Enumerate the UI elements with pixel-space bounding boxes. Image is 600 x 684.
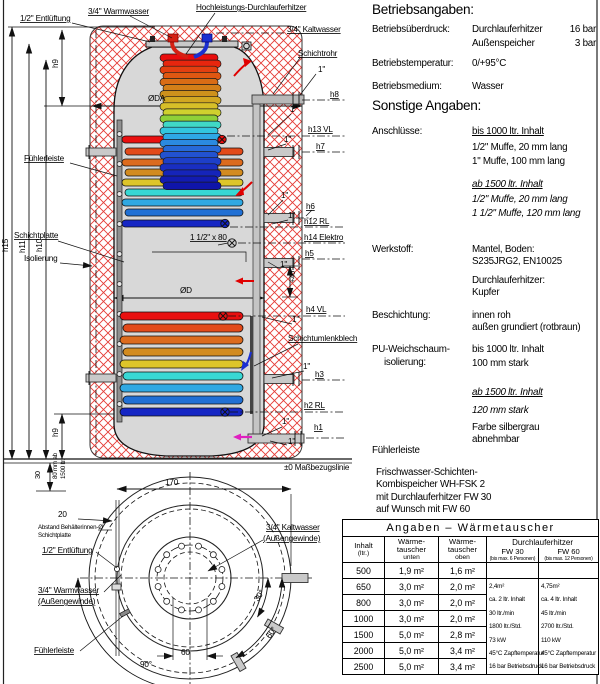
label-h14: h14 Elektro: [304, 233, 344, 242]
label-elektro-muffe: 1 1/2" x 80: [190, 233, 227, 242]
label-h12: h12 RL: [304, 217, 330, 226]
label-h1: h1: [314, 423, 323, 432]
label-plus40: +40: [288, 271, 297, 283]
label-h2: h2 RL: [304, 401, 325, 410]
label-umlenkblech: Schichtumlenkblech: [288, 334, 358, 343]
label-fuehlerleiste: Fühlerleiste: [24, 154, 65, 163]
label-h6: h6: [306, 202, 315, 211]
label-od: ØD: [180, 286, 192, 295]
label-inch: 1": [282, 417, 289, 426]
label-inch: 1": [290, 105, 297, 114]
spec-ans-3: 1" Muffe, 100 mm lang: [472, 156, 565, 167]
spec-product-2: Kombispeicher WH-FSK 2: [376, 479, 485, 490]
label-inch: 1": [288, 437, 295, 446]
label-abstand-2: Schichtplatte: [38, 532, 72, 539]
spec-ans-6: 1 1/2" Muffe, 120 mm lang: [472, 208, 580, 219]
label-abstand-1: Abstand Behälterinnen-Ø: [38, 524, 103, 531]
spec-ueberdruck-v1b: 16 bar: [570, 24, 596, 35]
table-title: Angaben – Wärmetauscher: [343, 520, 599, 537]
col-header-unten: Wärme-tauscherunten: [385, 537, 439, 563]
spec-ans-2: 1/2" Muffe, 20 mm lang: [472, 142, 567, 153]
label-dim80a: 80 mm ab: [52, 452, 59, 479]
entlueftung-fitting: [114, 566, 119, 571]
label-dim170: 170: [165, 478, 179, 487]
label-dim30: 30: [33, 471, 42, 479]
spec-werk-3: Durchlauferhitzer:: [472, 275, 545, 286]
label-tv-kaltwasser-2: (Außengewinde): [263, 534, 321, 543]
spec-werkstoff-label: Werkstoff:: [372, 244, 413, 255]
spec-besch-2: außen grundiert (rotbraun): [472, 322, 580, 333]
label-oda: ØDA: [148, 94, 166, 103]
spec-medium-value: Wasser: [472, 81, 503, 92]
fw60-details: 4,75m²ca. 4 ltr. Inhalt45 ltr./min 2700 …: [539, 579, 599, 675]
spec-ueberdruck-label: Betriebsüberdruck:: [372, 24, 450, 35]
spec-werk-4: Kupfer: [472, 287, 499, 298]
spec-ans-1: bis 1000 ltr. Inhalt: [472, 126, 544, 137]
label-h10: h10: [35, 238, 44, 252]
spec-medium-label: Betriebsmedium:: [372, 81, 442, 92]
label-tv-warmwasser-2: (Außengewinde): [38, 597, 96, 606]
label-tv-fuehlerleiste: Fühlerleiste: [34, 646, 75, 655]
label-h13: h13 VL: [308, 125, 333, 134]
spec-ueberdruck-v2b: 3 bar: [575, 38, 596, 49]
col-header-oben: Wärme-tauscheroben: [439, 537, 487, 563]
vent-fitting: [150, 36, 155, 42]
label-tv-entlueftung: 1/2" Entlüftung: [42, 546, 93, 555]
top-view: 170 20 Abstand Behälterinnen-Ø Schichtpl…: [34, 472, 321, 684]
label-dim60: 60: [181, 648, 190, 657]
label-inch: 1": [284, 135, 291, 144]
label-h3: h3: [315, 370, 324, 379]
label-h4: h4 VL: [306, 305, 327, 314]
label-inch: 1": [281, 191, 288, 200]
spec-pu-5: Farbe silbergrau: [472, 422, 539, 433]
spec-temperatur-label: Betriebstemperatur:: [372, 58, 453, 69]
label-isolierung: Isolierung: [24, 254, 58, 263]
label-hochleistung: Hochleistungs-Durchlauferhitzer: [196, 3, 307, 12]
col-header-fw60: FW 60(bis max. 12 Personen): [539, 548, 599, 563]
spec-werk-2: S235JRG2, EN10025: [472, 256, 562, 267]
fuehlerleiste-strip: [117, 120, 122, 422]
label-schichtplatte: Schichtplatte: [14, 231, 59, 240]
spec-product-4: auf Wunsch mit FW 60: [376, 504, 470, 515]
col-header-inhalt: Inhalt(ltr.): [343, 537, 385, 563]
label-h9-top: h9: [51, 59, 60, 68]
spec-pu-2: 100 mm stark: [472, 358, 528, 369]
spec-anschluesse-label: Anschlüsse:: [372, 126, 422, 137]
label-tv-kaltwasser: 3/4" Kaltwasser: [266, 523, 320, 532]
label-tv-warmwasser: 3/4" Warmwasser: [38, 586, 99, 595]
waermetauscher-table: Angaben – Wärmetauscher Inhalt(ltr.) Wär…: [342, 519, 599, 675]
label-inch: 1": [303, 362, 310, 371]
label-inch: 1": [318, 65, 325, 74]
label-warmwasser: 3/4" Warmwasser: [88, 7, 149, 16]
spec-pu-6: abnehmbar: [472, 434, 519, 445]
spec-ans-4: ab 1500 ltr. Inhalt: [472, 179, 543, 190]
spec-besch-1: innen roh: [472, 310, 511, 321]
spec-ueberdruck-v2: Außenspeicher: [472, 38, 535, 49]
label-massbezug: ±0 Maßbezugslinie: [284, 463, 350, 472]
spec-pu-label-2: isolierung:: [384, 357, 426, 368]
table-row: 6503,0 m²2,0 m² 2,4m²ca. 2 ltr. Inhalt30…: [343, 579, 599, 595]
label-h8: h8: [330, 90, 339, 99]
spec-pu-4: 120 mm stark: [472, 405, 528, 416]
durchlauferhitzer-coil: [160, 54, 221, 190]
label-h9-bottom: h9: [51, 428, 60, 437]
label-inch: 1": [280, 260, 287, 269]
fw30-details: 2,4m²ca. 2 ltr. Inhalt30 ltr./min 1800 l…: [487, 579, 539, 675]
spec-ueberdruck-v1: Durchlauferhitzer: [472, 24, 542, 35]
spec-pu-3: ab 1500 ltr. Inhalt: [472, 387, 543, 398]
col-header-fw30: FW 30(bis max. 6 Personen): [487, 548, 539, 563]
label-h11: h11: [18, 240, 27, 253]
spec-pu-label-1: PU-Weichschaum-: [372, 344, 450, 355]
schichtumlenkblech-plate: [250, 316, 253, 414]
top-fitting: [222, 36, 227, 42]
table-row: 5001,9 m²1,6 m²: [343, 563, 599, 579]
label-h5: h5: [305, 249, 314, 258]
label-ang90: 90°: [140, 660, 152, 669]
spec-fuehlerleiste-note: Fühlerleiste: [372, 445, 420, 456]
spec-temperatur-value: 0/+95°C: [472, 58, 506, 69]
label-inch: 1": [292, 315, 299, 324]
label-schichtrohr: Schichtrohr: [298, 49, 338, 58]
spec-title-betriebsangaben: Betriebsangaben:: [372, 4, 474, 15]
label-h7: h7: [316, 142, 325, 151]
label-inch: 1": [288, 211, 295, 220]
spec-product-1: Frischwasser-Schichten-: [376, 467, 478, 478]
label-dim20: 20: [58, 510, 67, 519]
label-dim80b: 1500 ltr.: [60, 458, 67, 479]
spec-pu-1: bis 1000 ltr. Inhalt: [472, 344, 544, 355]
kaltwasser-socket: [282, 574, 308, 583]
label-entlueftung: 1/2" Entlüftung: [20, 14, 71, 23]
spec-werk-1: Mantel, Boden:: [472, 244, 534, 255]
spec-title-sonstige: Sonstige Angaben:: [372, 100, 481, 111]
spec-ans-5: 1/2" Muffe, 20 mm lang: [472, 194, 567, 205]
heat-exchanger-lower: [120, 312, 243, 416]
label-kaltwasser: 3/4" Kaltwasser: [287, 25, 341, 34]
spec-beschichtung-label: Beschichtung:: [372, 310, 430, 321]
spec-product-3: mit Durchlauferhitzer FW 30: [376, 492, 491, 503]
warmwasser-fitting: [112, 584, 121, 590]
label-h15: h15: [1, 238, 10, 252]
